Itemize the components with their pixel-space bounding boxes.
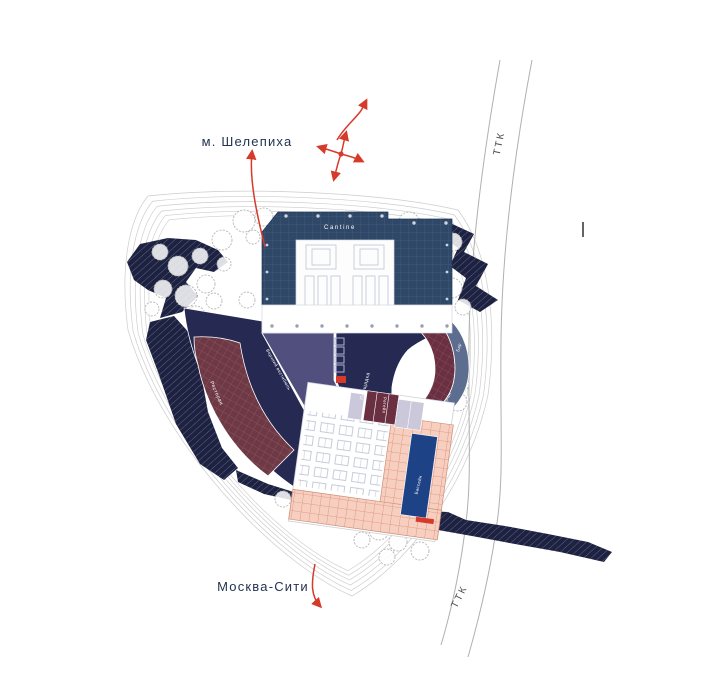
site-plan-canvas: Cantine Бассейн Ретейл Верхний вестибюль… bbox=[0, 0, 719, 682]
tree bbox=[206, 293, 222, 309]
ttk-label-bottom: ТТК bbox=[449, 584, 470, 610]
tree bbox=[275, 491, 291, 507]
retail-block bbox=[363, 391, 399, 425]
canteen-label: Cantine bbox=[324, 225, 356, 231]
tree bbox=[154, 280, 172, 298]
tree bbox=[192, 248, 208, 264]
compass-center-dot bbox=[338, 151, 343, 156]
canteen-building: Cantine bbox=[262, 212, 452, 333]
tree bbox=[354, 532, 370, 548]
tree bbox=[239, 292, 255, 308]
lower-pavilion: Бассейн Ретейл bbox=[288, 382, 456, 542]
tree bbox=[217, 257, 231, 271]
site-plan-page: Cantine Бассейн Ретейл Верхний вестибюль… bbox=[0, 0, 719, 682]
tree bbox=[233, 210, 255, 232]
retail-arc-label: Ретейл bbox=[420, 371, 430, 388]
city-direction-arrow bbox=[312, 564, 320, 606]
colonnade bbox=[262, 305, 452, 333]
tree bbox=[212, 230, 232, 250]
tree bbox=[152, 244, 168, 260]
metro-label: м. Шелепиха bbox=[202, 134, 293, 149]
pavilion-furniture bbox=[297, 411, 389, 498]
tree bbox=[411, 542, 429, 560]
tree bbox=[455, 299, 471, 315]
tree bbox=[145, 302, 159, 316]
north-compass bbox=[319, 101, 366, 179]
tree bbox=[168, 256, 188, 276]
tree bbox=[379, 549, 395, 565]
city-label: Москва-Сити bbox=[217, 579, 309, 594]
ttk-label-top: ТТК bbox=[492, 131, 508, 157]
tree bbox=[175, 285, 197, 307]
escalator-marker bbox=[336, 376, 346, 383]
tree bbox=[246, 230, 260, 244]
tree bbox=[197, 275, 215, 293]
